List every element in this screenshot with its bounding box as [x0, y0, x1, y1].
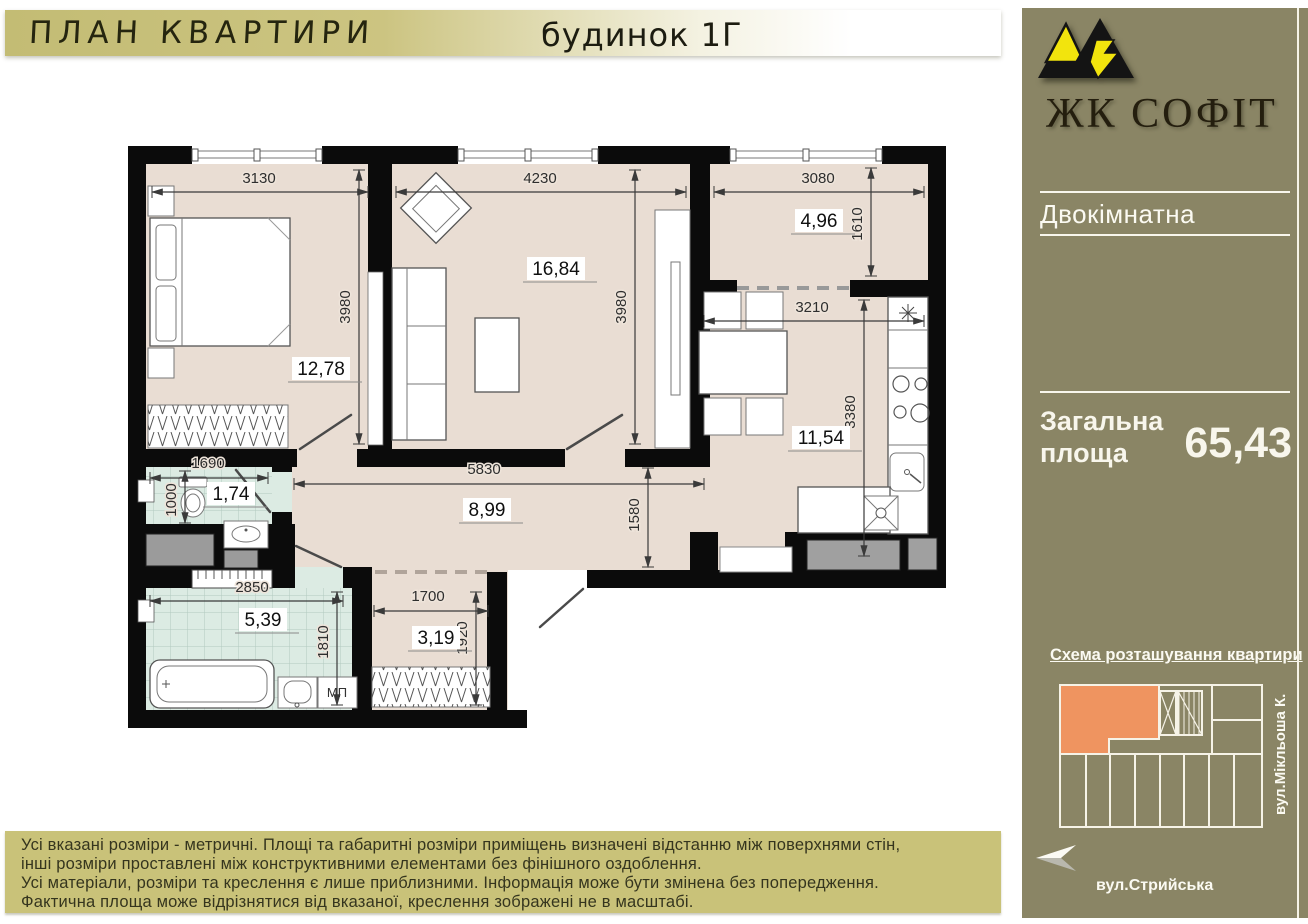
svg-text:11,54: 11,54	[798, 428, 845, 449]
svg-text:1580: 1580	[626, 498, 643, 531]
kitchen-sink	[890, 453, 924, 491]
brand-logo-icon	[1036, 14, 1146, 84]
svg-text:4230: 4230	[523, 170, 556, 187]
sofa	[392, 268, 446, 440]
svg-text:1,74: 1,74	[213, 484, 250, 505]
sidebar-edge-line	[1297, 8, 1299, 918]
bathtub	[150, 660, 274, 708]
bed	[150, 218, 290, 346]
window-balcony	[730, 146, 882, 164]
apartment-type: Двокімнатна	[1040, 199, 1195, 230]
divider	[1040, 234, 1290, 236]
toilet	[179, 477, 207, 517]
svg-text:1610: 1610	[849, 207, 866, 240]
floor-plan-drawing: 3130423030801610398039803210338016901000…	[0, 0, 1030, 830]
page-title: ПЛАН КВАРТИРИ	[28, 15, 376, 51]
svg-text:3130: 3130	[242, 170, 275, 187]
street-label-right: вул.Мікльоша К.	[1272, 694, 1289, 815]
floor-plan-page: { "header": { "title": "ПЛАН КВАРТИРИ", …	[0, 0, 1308, 924]
nightstand	[148, 348, 174, 378]
svg-text:1700: 1700	[411, 588, 444, 605]
svg-text:1690: 1690	[191, 455, 224, 472]
sidebar: ЖК СОФІТ Двокімнатна Загальна площа 65,4…	[1022, 8, 1308, 918]
brand-name: ЖК СОФІТ	[1046, 90, 1278, 138]
direction-arrow-icon	[1034, 843, 1080, 873]
building-label: будинок 1Г	[541, 16, 742, 54]
divider	[1040, 391, 1290, 393]
windows	[192, 146, 882, 164]
built-in-wardrobe	[655, 210, 690, 448]
svg-text:5830: 5830	[467, 461, 500, 478]
bedroom-wardrobe	[148, 405, 288, 448]
window-living	[458, 146, 598, 164]
svg-text:3380: 3380	[842, 395, 859, 428]
svg-text:4,96: 4,96	[801, 211, 838, 232]
svg-text:3980: 3980	[337, 290, 354, 323]
svg-text:5,39: 5,39	[245, 610, 282, 631]
disclaimer-footer: Усі вказані розміри - метричні. Площі та…	[5, 831, 1001, 913]
svg-text:16,84: 16,84	[532, 259, 580, 280]
svg-text:12,78: 12,78	[297, 359, 345, 380]
coffee-table	[475, 318, 519, 392]
svg-text:3,19: 3,19	[418, 628, 455, 649]
bath-washbasin	[278, 677, 317, 708]
header-bar: ПЛАН КВАРТИРИ будинок 1Г	[5, 10, 1001, 56]
disclaimer-line: Фактична площа може відрізнятися від вка…	[21, 893, 1001, 912]
highlighted-apartment	[1060, 685, 1159, 754]
total-area-value: 65,43	[1172, 419, 1292, 468]
total-area-label: Загальна площа	[1040, 405, 1163, 469]
wc-washbasin	[224, 521, 268, 548]
disclaimer-line: Усі матеріали, розміри та креслення є ли…	[21, 874, 1001, 893]
svg-text:2850: 2850	[235, 579, 268, 596]
svg-text:3080: 3080	[801, 170, 834, 187]
street-label-bottom: вул.Стрийська	[1096, 877, 1213, 895]
svg-text:8,99: 8,99	[469, 500, 506, 521]
building-scheme-map	[1058, 683, 1264, 829]
svg-text:3980: 3980	[613, 290, 630, 323]
disclaimer-line: інші розміри проставлені між конструктив…	[21, 855, 1001, 874]
entrance-door	[540, 589, 583, 627]
svg-text:1810: 1810	[315, 625, 332, 658]
disclaimer-line: Усі вказані розміри - метричні. Площі та…	[21, 836, 1001, 855]
svg-text:1000: 1000	[163, 483, 180, 516]
divider	[1040, 191, 1290, 193]
svg-text:3210: 3210	[795, 299, 828, 316]
entry-wardrobe	[372, 667, 490, 707]
window-bedroom	[192, 146, 322, 164]
sink-unit	[864, 496, 898, 530]
washing-machine-label: МП	[327, 685, 347, 700]
scheme-title: Схема розташування квартири	[1050, 646, 1303, 665]
